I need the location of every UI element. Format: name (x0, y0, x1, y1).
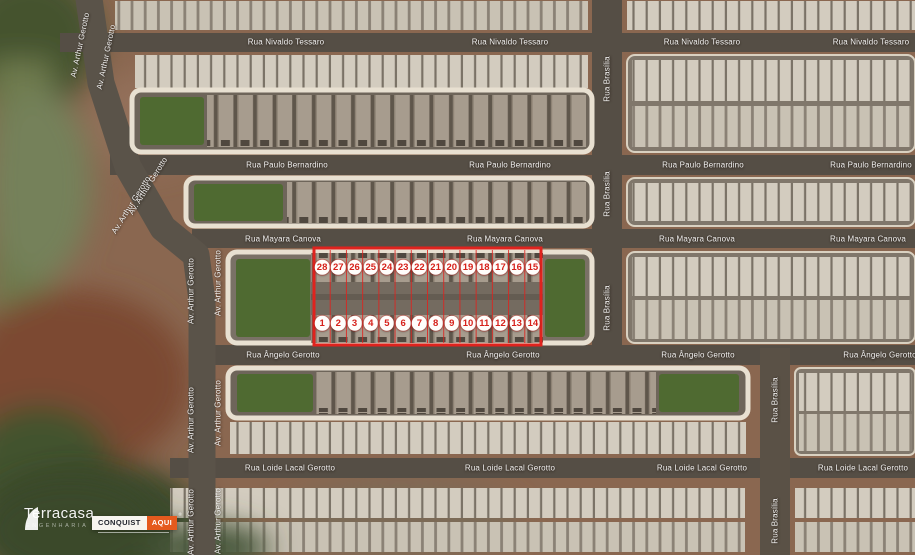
terracasa-logo: Terracasa ENGENHARIA (24, 506, 94, 530)
road-brasilia-lower (760, 348, 790, 555)
registered-mark: ® (178, 513, 182, 518)
badge-underline (98, 532, 169, 533)
badge-primary-label: CONQUIST (92, 516, 147, 530)
site-map: Rua Nivaldo TessaroRua Nivaldo TessaroRu… (0, 0, 915, 555)
terracasa-sail-icon (24, 507, 39, 531)
badge-secondary-label: AQUI ® (147, 516, 177, 530)
map-graphic (0, 0, 915, 555)
road-brasilia-upper (592, 0, 622, 365)
conquist-aqui-badge: CONQUIST AQUI ® (92, 516, 177, 530)
